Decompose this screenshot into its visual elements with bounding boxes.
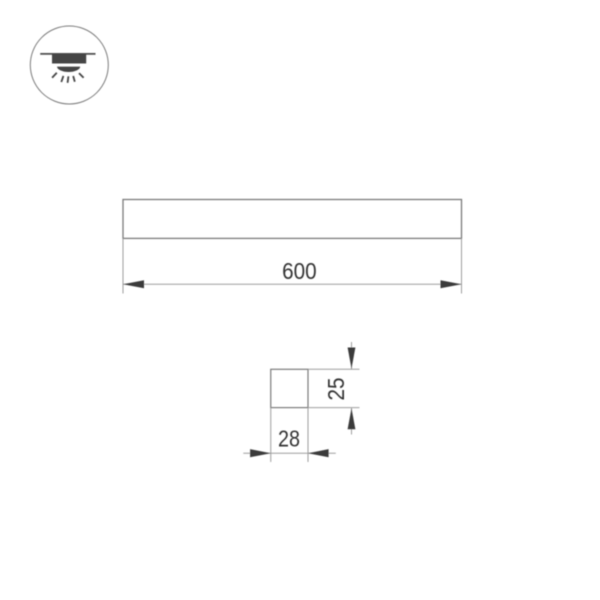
svg-text:600: 600 (282, 258, 317, 284)
svg-text:28: 28 (278, 425, 300, 451)
svg-text:25: 25 (323, 378, 349, 401)
